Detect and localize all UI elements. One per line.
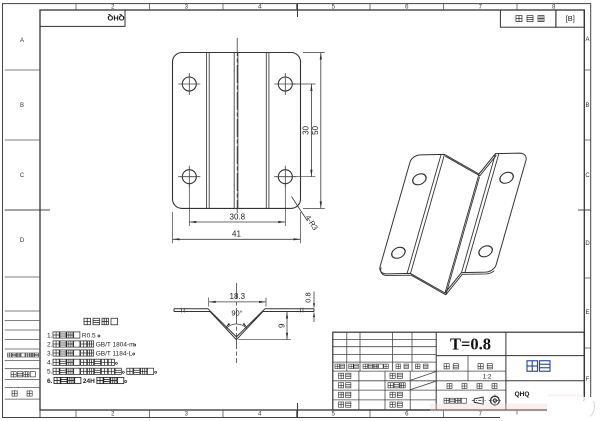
svg-text:F: F [586,377,590,383]
svg-text:6.: 6. [47,378,53,385]
svg-text:D: D [585,241,590,247]
svg-text:24H: 24H [83,378,95,385]
svg-text:3.: 3. [47,350,53,357]
svg-text:A: A [585,37,589,43]
svg-text:90°: 90° [231,308,242,317]
svg-text:GB/T 1804-m: GB/T 1804-m [96,341,135,348]
svg-text:B: B [585,103,589,109]
svg-text:9: 9 [277,323,286,328]
svg-text:50: 50 [311,125,320,134]
svg-text:1.: 1. [47,332,53,339]
svg-text:B: B [20,103,24,109]
svg-text:4.: 4. [47,360,53,367]
svg-text:18.3: 18.3 [230,292,246,301]
svg-text:QHQ: QHQ [515,391,530,398]
svg-text:T=0.8: T=0.8 [450,335,491,354]
svg-text:R0.5: R0.5 [82,332,96,339]
svg-text:A: A [20,38,24,44]
svg-text:C: C [20,173,25,179]
svg-text:2.: 2. [47,341,53,348]
svg-text:1:2: 1:2 [482,374,491,381]
svg-text:0.8: 0.8 [304,292,313,302]
svg-text:QHQ: QHQ [107,13,124,22]
svg-text:41: 41 [232,230,241,239]
svg-text:E: E [585,310,589,316]
svg-text:GB/T 1184-L: GB/T 1184-L [96,350,133,357]
svg-text:D: D [20,238,25,244]
svg-text:5.: 5. [47,369,53,376]
svg-text:C: C [585,173,590,179]
svg-text:[B]: [B] [566,14,575,23]
svg-text:30.8: 30.8 [230,212,246,221]
svg-text:30: 30 [302,125,311,134]
